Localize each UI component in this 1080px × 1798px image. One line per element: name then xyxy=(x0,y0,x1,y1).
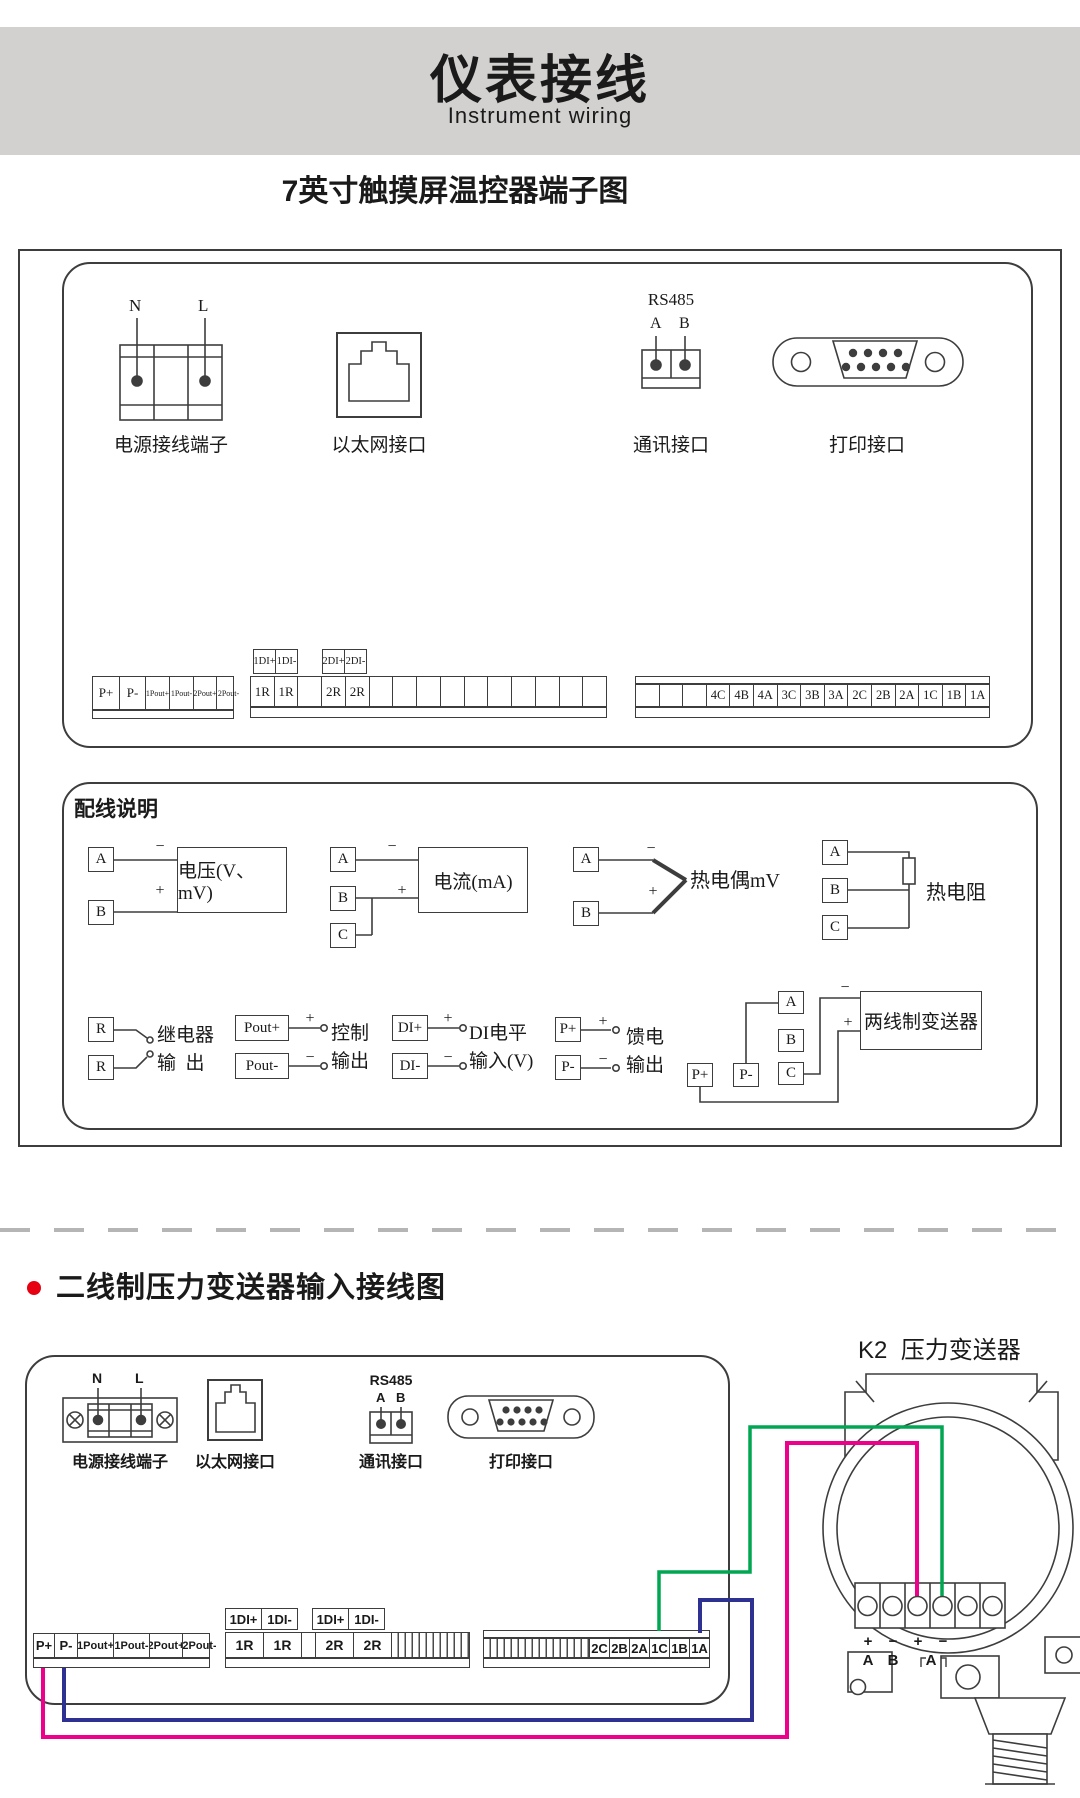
k2-transmitter-label: K2 压力变送器 xyxy=(858,1330,1021,1365)
terminal-cell: 2B xyxy=(609,1639,629,1657)
transmitter-polarity: − xyxy=(889,1633,898,1650)
terminal-cell: 1DI+ xyxy=(313,1609,348,1629)
term-p-minus: P- xyxy=(733,1063,759,1087)
terminal-cell: P+ xyxy=(34,1634,54,1657)
terminal-cell xyxy=(682,685,706,706)
minus-sign: − xyxy=(440,1049,456,1067)
term-c: C xyxy=(330,923,356,948)
term-a: A xyxy=(330,847,356,872)
ethernet-label: 以太网接口 xyxy=(331,430,426,457)
power-label: 电源接线端子 xyxy=(114,430,228,457)
page: { "signs": {"plus": "+", "minus": "−"}, … xyxy=(0,0,1080,1798)
rs485-label: 通讯接口 xyxy=(633,430,709,457)
di2-label-box: 1DI+ 1DI- xyxy=(312,1608,385,1630)
printer-label: 打印接口 xyxy=(489,1448,553,1472)
printer-label: 打印接口 xyxy=(829,430,905,457)
terminal-cell: 1R xyxy=(274,677,298,706)
rs485-pin-b: B xyxy=(396,1390,405,1405)
terminal-cell: 1R xyxy=(263,1633,301,1657)
terminal-cell: 1DI+ xyxy=(254,650,275,673)
terminal-cell: 1Pout- xyxy=(169,677,193,709)
terminal-cell xyxy=(301,1633,315,1657)
terminal-cell: 1Pout- xyxy=(113,1634,149,1657)
term-r: R xyxy=(88,1017,114,1042)
control-label-2: 输出 xyxy=(331,1046,369,1073)
page-title: 仪表接线 xyxy=(0,38,1080,113)
bullet-icon xyxy=(27,1281,41,1295)
terminal-cell: 3C xyxy=(777,685,801,706)
terminal-strip-right-top xyxy=(483,1630,710,1638)
terminal-cell: 2Pout- xyxy=(216,677,240,709)
minus-sign: − xyxy=(643,840,659,858)
terminal-cell xyxy=(659,685,683,706)
minus-sign: − xyxy=(837,979,853,997)
di1-label-box: 1DI+ 1DI- xyxy=(225,1608,298,1630)
plus-sign: + xyxy=(595,1013,611,1031)
term-p-minus: P- xyxy=(555,1055,581,1080)
terminal-cell: 2C xyxy=(589,1639,609,1657)
transmitter-polarity: + xyxy=(864,1633,873,1650)
relay-label-2: 输 出 xyxy=(157,1048,205,1075)
terminal-cell xyxy=(416,677,440,706)
terminal-cell: 1C xyxy=(649,1639,669,1657)
term-c: C xyxy=(778,1062,804,1085)
terminal-strip-right-base xyxy=(483,1658,710,1668)
terminal-cell xyxy=(297,677,321,706)
terminal-strip-left-base xyxy=(33,1658,210,1668)
di2-label-box: 2DI+ 2DI- xyxy=(322,649,367,674)
terminal-cell: 2R xyxy=(353,1633,391,1657)
terminal-cell: 2DI- xyxy=(344,650,366,673)
terminal-hatch-cells xyxy=(484,1639,589,1657)
control-label-1: 控制 xyxy=(331,1018,369,1045)
term-b: B xyxy=(330,886,356,911)
rs485-title: RS485 xyxy=(370,1372,413,1388)
feed-label-2: 输出 xyxy=(626,1050,664,1077)
power-pin-l: L xyxy=(135,1370,144,1386)
power-pin-n: N xyxy=(92,1370,102,1386)
plus-sign: + xyxy=(152,882,168,900)
terminal-cell: 2B xyxy=(871,685,895,706)
term-r: R xyxy=(88,1055,114,1080)
term-di-plus: DI+ xyxy=(392,1015,428,1041)
rs485-pin-b: B xyxy=(679,315,690,333)
terminal-strip-middle-base xyxy=(225,1658,470,1668)
voltage-box: 电压(V、mV) xyxy=(177,847,287,913)
term-a: A xyxy=(822,840,848,865)
terminal-cell: 2Pout- xyxy=(182,1634,216,1657)
di-label-1: DI电平 xyxy=(469,1018,527,1045)
dashed-divider xyxy=(0,1228,1080,1232)
terminal-cell: 2R xyxy=(315,1633,353,1657)
terminal-cell xyxy=(392,677,416,706)
terminal-cell: 2DI+ xyxy=(323,650,344,673)
minus-sign: − xyxy=(384,838,400,856)
terminal-cell: 3A xyxy=(824,685,848,706)
terminal-strip-left: P+ P- 1Pout+ 1Pout- 2Pout+ 2Pout- xyxy=(92,676,234,710)
terminal-cell: 2C xyxy=(847,685,871,706)
page-subtitle: Instrument wiring xyxy=(0,103,1080,129)
thermocouple-label: 热电偶mV xyxy=(690,864,780,893)
section1-title: 7英寸触摸屏温控器端子图 xyxy=(130,166,780,210)
plus-sign: + xyxy=(440,1010,456,1028)
minus-sign: − xyxy=(595,1051,611,1069)
terminal-strip-right-top xyxy=(635,676,990,684)
terminal-cell: 4A xyxy=(753,685,777,706)
rtd-label: 热电阻 xyxy=(926,876,986,905)
term-p-plus: P+ xyxy=(687,1063,713,1087)
terminal-cell: 3B xyxy=(800,685,824,706)
terminal-cell: 1Pout+ xyxy=(77,1634,113,1657)
terminal-cell xyxy=(464,677,488,706)
power-pin-l: L xyxy=(198,296,208,316)
terminal-hatch-cells xyxy=(391,1633,469,1657)
current-box: 电流(mA) xyxy=(418,847,528,913)
rs485-pin-a: A xyxy=(650,315,662,333)
terminal-strip-right: 2C 2B 2A 1C 1B 1A xyxy=(483,1638,710,1658)
terminal-cell: 4C xyxy=(706,685,730,706)
transmitter-polarity: − xyxy=(939,1633,948,1650)
wiring-panel-title: 配线说明 xyxy=(74,793,158,823)
terminal-cell xyxy=(369,677,393,706)
terminal-cell xyxy=(487,677,511,706)
terminal-cell: 1R xyxy=(251,677,274,706)
plus-sign: + xyxy=(302,1010,318,1028)
terminal-strip-middle: 1R 1R 2R 2R xyxy=(250,676,607,707)
terminal-cell: 1Pout+ xyxy=(145,677,169,709)
terminal-strip-right: 4C 4B 4A 3C 3B 3A 2C 2B 2A 1C 1B 1A xyxy=(635,684,990,707)
term-c: C xyxy=(822,915,848,940)
terminal-cell: 1A xyxy=(689,1639,709,1657)
terminal-cell: 2R xyxy=(321,677,345,706)
terminal-cell xyxy=(511,677,535,706)
plus-sign: + xyxy=(394,882,410,900)
terminal-cell: P- xyxy=(54,1634,77,1657)
terminal-strip-left: P+ P- 1Pout+ 1Pout- 2Pout+ 2Pout- xyxy=(33,1633,210,1658)
terminal-cell: 1B xyxy=(669,1639,689,1657)
rs485-title: RS485 xyxy=(648,290,694,310)
term-pout-minus: Pout- xyxy=(235,1053,289,1079)
term-a: A xyxy=(778,991,804,1014)
rs485-pin-a: A xyxy=(376,1390,385,1405)
relay-label-1: 继电器 xyxy=(157,1020,214,1047)
wiring-panel xyxy=(62,782,1038,1130)
term-pout-plus: Pout+ xyxy=(235,1015,289,1041)
power-pin-n: N xyxy=(129,296,141,316)
power-label: 电源接线端子 xyxy=(72,1448,168,1472)
plus-sign: + xyxy=(840,1014,856,1032)
plus-sign: + xyxy=(645,883,661,901)
terminal-cell: 1R xyxy=(226,1633,263,1657)
terminal-cell: P+ xyxy=(93,677,119,709)
terminal-cell xyxy=(636,685,659,706)
term-a: A xyxy=(88,847,114,872)
terminal-cell: 2A xyxy=(895,685,919,706)
terminal-strip-left-base xyxy=(92,710,234,719)
di-label-2: 输入(V) xyxy=(469,1046,533,1073)
term-a: A xyxy=(573,847,599,872)
terminal-strip-right-base xyxy=(635,707,990,718)
feed-label-1: 馈电 xyxy=(626,1022,664,1049)
transmitter-pin-a2: A xyxy=(926,1652,937,1669)
section2-title: 二线制压力变送器输入接线图 xyxy=(56,1264,446,1306)
terminal-cell: 1B xyxy=(942,685,966,706)
term-b: B xyxy=(778,1029,804,1052)
terminal-strip-middle-base xyxy=(250,707,607,718)
terminal-cell: 1C xyxy=(918,685,942,706)
term-b: B xyxy=(88,900,114,925)
minus-sign: − xyxy=(302,1049,318,1067)
term-p-plus: P+ xyxy=(555,1017,581,1042)
terminal-cell: 1A xyxy=(965,685,989,706)
terminal-strip-middle: 1R 1R 2R 2R xyxy=(225,1632,470,1658)
terminal-cell xyxy=(535,677,559,706)
di1-label-box: 1DI+ 1DI- xyxy=(253,649,298,674)
terminal-cell xyxy=(440,677,464,706)
term-di-minus: DI- xyxy=(392,1053,428,1079)
terminal-cell: P- xyxy=(119,677,145,709)
terminal-cell: 1DI- xyxy=(275,650,297,673)
terminal-cell: 2Pout+ xyxy=(193,677,216,709)
terminal-cell: 1DI- xyxy=(348,1609,384,1629)
terminal-cell: 1DI+ xyxy=(226,1609,261,1629)
terminal-cell: 2A xyxy=(629,1639,649,1657)
pressure-transmitter-icon xyxy=(823,1374,1080,1784)
ethernet-label: 以太网接口 xyxy=(195,1448,275,1472)
transmitter-polarity: + xyxy=(914,1633,923,1650)
terminal-cell: 2Pout+ xyxy=(149,1634,182,1657)
transmitter-pin-b: B xyxy=(888,1652,899,1669)
term-b: B xyxy=(573,901,599,926)
terminal-cell: 1DI- xyxy=(261,1609,297,1629)
terminal-cell xyxy=(582,677,606,706)
term-b: B xyxy=(822,878,848,903)
transmitter-pin-a: A xyxy=(863,1652,874,1669)
rs485-label: 通讯接口 xyxy=(359,1448,423,1472)
twowire-transmitter-box: 两线制变送器 xyxy=(860,991,982,1050)
terminal-cell: 4B xyxy=(729,685,753,706)
terminal-cell xyxy=(559,677,583,706)
terminal-cell: 2R xyxy=(345,677,369,706)
minus-sign: − xyxy=(152,838,168,856)
